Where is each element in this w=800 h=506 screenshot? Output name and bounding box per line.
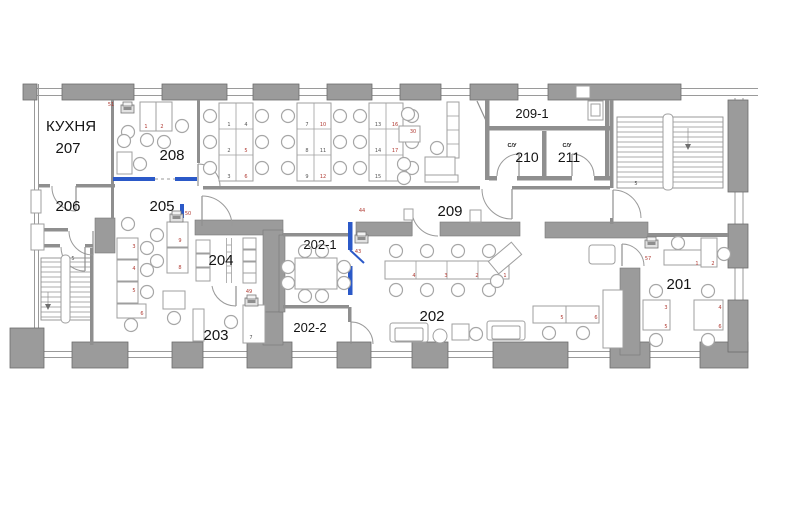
- printer-icon: [355, 232, 368, 243]
- cabinet: [404, 209, 413, 220]
- tag-label: 9: [178, 238, 181, 244]
- desk: [425, 157, 455, 175]
- room-label: КУХНЯ: [46, 118, 96, 135]
- tag-label: 5: [132, 288, 135, 294]
- desk: [140, 102, 156, 131]
- tag-label: 44: [359, 208, 365, 214]
- printer-icon: [121, 102, 134, 113]
- tag-label: 6: [718, 324, 721, 330]
- tag-label: 5: [560, 315, 563, 321]
- floor-plan-drawing: КУХНЯ207206208205204203202-1202-22022092…: [0, 0, 800, 506]
- room-label: 207: [55, 140, 80, 157]
- room-label: 210: [515, 149, 539, 165]
- tag-label: 4: [132, 266, 135, 272]
- room-label: 204: [208, 252, 233, 269]
- room-label: 202-1: [303, 237, 336, 252]
- tag-label: 4: [412, 273, 415, 279]
- tag-label: 1: [695, 261, 698, 267]
- tag-label: 7: [249, 335, 252, 341]
- tag-label: 14: [375, 148, 381, 154]
- tag-label: 6: [140, 311, 143, 317]
- floor-plan: КУХНЯ207206208205204203202-1202-22022092…: [0, 0, 800, 506]
- printer-icon: [645, 237, 658, 248]
- shelf: [243, 250, 256, 261]
- tag-label: 5: [634, 181, 637, 187]
- tag-label: 9: [305, 174, 308, 180]
- room-label: 206: [55, 198, 80, 215]
- shelf: [243, 262, 256, 273]
- tag-label: 2: [711, 261, 714, 267]
- tag-label: 16: [392, 122, 398, 128]
- tag-label: 5: [71, 256, 74, 262]
- tag-label: 3: [444, 273, 447, 279]
- vent-shaft: [576, 86, 590, 98]
- tag-label: 4: [244, 122, 247, 128]
- desk: [701, 238, 717, 267]
- tag-label: 49: [246, 289, 252, 295]
- staircase-right: [617, 114, 723, 190]
- room-label: 205: [149, 198, 174, 215]
- sofa: [390, 323, 428, 342]
- coffee-table: [433, 329, 447, 343]
- room-label: 208: [159, 147, 184, 164]
- tag-label: 43: [355, 249, 361, 255]
- room-label: 209: [437, 203, 462, 220]
- tag-label: 11: [320, 148, 326, 154]
- desk: [243, 305, 265, 343]
- desk: [117, 152, 132, 174]
- tag-label: 57: [645, 256, 651, 262]
- room-label: 201: [666, 276, 691, 293]
- sofa: [487, 321, 525, 340]
- tag-label: 3: [664, 305, 667, 311]
- tag-label: 3: [227, 174, 230, 180]
- side-table: [452, 324, 469, 340]
- room-206-furniture: [31, 190, 44, 250]
- room-202-1-furniture: [282, 245, 351, 303]
- room-label: 209-1: [515, 106, 548, 121]
- tag-label: 8: [178, 265, 181, 271]
- tag-label: 15: [375, 174, 381, 180]
- room-label: 211: [558, 149, 581, 165]
- cabinet: [31, 224, 44, 250]
- cabinet: [603, 290, 623, 348]
- shelf: [243, 273, 256, 283]
- cabinet: [470, 210, 481, 222]
- tag-label: 2: [475, 273, 478, 279]
- tag-label: 1: [503, 273, 506, 279]
- tag-label: 1: [144, 124, 147, 130]
- room-205-furniture: [117, 211, 188, 332]
- tag-label: 12: [320, 174, 326, 180]
- staircase-left: [41, 255, 92, 323]
- tag-label: 2: [227, 148, 230, 154]
- shelf: [196, 268, 210, 281]
- tag-label: 6: [244, 174, 247, 180]
- tag-label: 1: [227, 122, 230, 128]
- room-label: 202: [419, 308, 444, 325]
- desk: [156, 102, 172, 131]
- desk-return: [425, 175, 458, 182]
- tag-label: 3: [132, 244, 135, 250]
- room-label: 202-2: [293, 320, 326, 335]
- tag-label: 4: [718, 305, 721, 311]
- tag-label: 50: [185, 211, 191, 217]
- radiator: [31, 190, 41, 213]
- tag-label: 5: [664, 324, 667, 330]
- shelf: [243, 238, 256, 249]
- printer-icon: [245, 295, 258, 306]
- tag-label: 8: [305, 148, 308, 154]
- table: [589, 245, 615, 264]
- tag-label: 6: [594, 315, 597, 321]
- tag-label: 7: [305, 122, 308, 128]
- room-label: 203: [203, 327, 228, 344]
- tag-label: 13: [375, 122, 381, 128]
- tag-label: 2: [160, 124, 163, 130]
- tag-label: 5: [244, 148, 247, 154]
- cabinet: [193, 309, 204, 341]
- table: [163, 291, 185, 309]
- tag-label: 10: [320, 122, 326, 128]
- tag-label: 17: [392, 148, 398, 154]
- room-202-furniture: [355, 232, 623, 348]
- meeting-table: [295, 258, 337, 289]
- tag-label: 30: [410, 129, 416, 135]
- tag-label: 51: [108, 102, 114, 108]
